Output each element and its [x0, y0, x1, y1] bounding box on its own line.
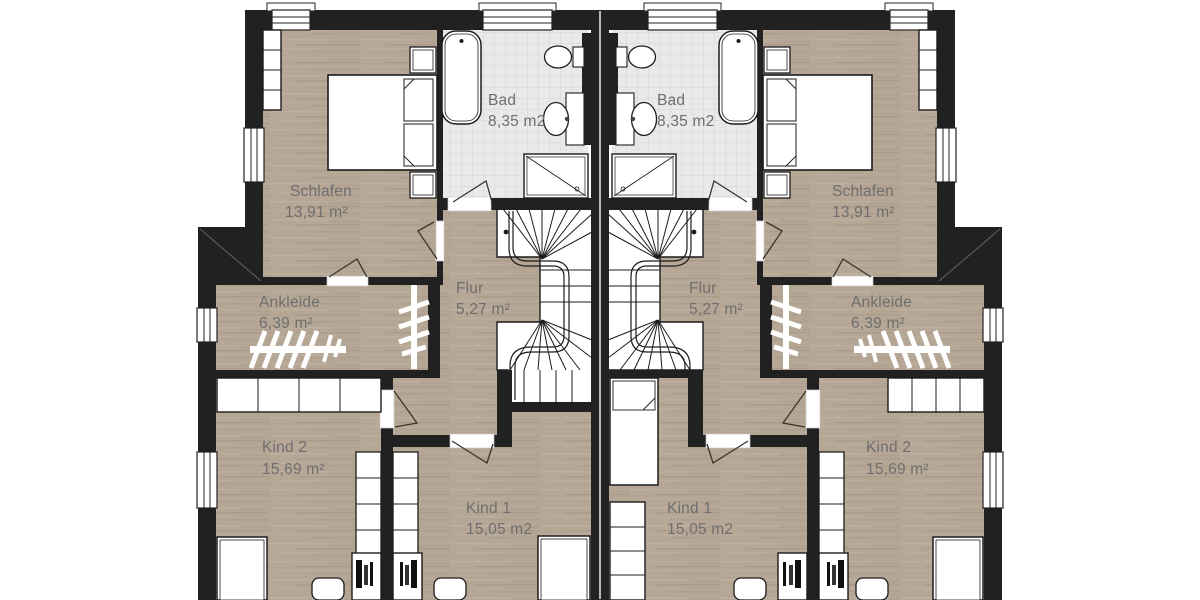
door-opening-kind1-right: [706, 434, 750, 448]
label-bad-left-area: 8,35 m2: [488, 113, 545, 130]
sink-faucet: [631, 117, 635, 121]
toilet-right: [629, 46, 656, 68]
chair-kind1-right: [734, 578, 766, 600]
label-bad-left-name: Bad: [488, 92, 516, 109]
label-kind1-right-name: Kind 1: [667, 500, 712, 517]
label-kind2-left-name: Kind 2: [262, 439, 307, 456]
label-ankleide-left-name: Ankleide: [259, 294, 320, 311]
label-kind2-right-area: 15,69 m²: [866, 461, 929, 478]
label-flur-right-area: 5,27 m²: [689, 301, 743, 318]
outer-wall-right-lower: [984, 243, 1002, 600]
window-schlafen-right: [890, 10, 928, 30]
floor-plan: Schlafen 13,91 m² Bad 8,35 m2 Ankleide 6…: [0, 0, 1200, 600]
window-ankleide-left: [197, 308, 217, 342]
pillow: [613, 381, 655, 410]
floor-plan-page: Schlafen 13,91 m² Bad 8,35 m2 Ankleide 6…: [0, 0, 1200, 600]
pillow: [404, 79, 433, 121]
label-schlafen-right-area: 13,91 m²: [832, 204, 895, 221]
window-schlafen-side-left: [244, 128, 264, 182]
room-ankleide-left: [216, 283, 428, 370]
label-schlafen-left-area: 13,91 m²: [285, 204, 348, 221]
door-opening-kind2-right: [806, 390, 820, 428]
chair-kind2-right: [856, 578, 888, 600]
door-opening-kind2-left: [380, 390, 394, 428]
door-opening-schlafen-right: [756, 221, 764, 261]
label-schlafen-right-name: Schlafen: [832, 183, 894, 200]
window-schlafen-side-right: [936, 128, 956, 182]
toilet-tank: [616, 47, 627, 67]
outer-wall-left-upper: [245, 10, 263, 227]
door-opening-ankleide-left: [327, 276, 368, 286]
label-kind2-right-name: Kind 2: [866, 439, 911, 456]
label-bad-right-name: Bad: [657, 92, 685, 109]
label-bad-right-area: 8,35 m2: [657, 113, 714, 130]
sink-right: [632, 103, 657, 136]
tub-faucet: [737, 39, 741, 43]
label-flur-left-name: Flur: [456, 280, 484, 297]
label-kind1-left-name: Kind 1: [466, 500, 511, 517]
tub-faucet: [460, 39, 464, 43]
label-kind1-right-area: 15,05 m2: [667, 521, 733, 538]
pillow: [767, 124, 796, 166]
door-opening-bad-right: [709, 197, 752, 211]
window-schlafen-left: [272, 10, 310, 30]
outer-wall-left-lower: [198, 243, 216, 600]
window-kind2-left: [197, 452, 217, 508]
door-opening-ankleide-right: [832, 276, 873, 286]
label-flur-left-area: 5,27 m²: [456, 301, 510, 318]
window-ankleide-right: [983, 308, 1003, 342]
pillow: [404, 124, 433, 166]
chair-kind2-left: [312, 578, 344, 600]
window-bad-left: [483, 10, 552, 30]
label-kind1-left-area: 15,05 m2: [466, 521, 532, 538]
label-flur-right-name: Flur: [689, 280, 717, 297]
label-kind2-left-area: 15,69 m²: [262, 461, 325, 478]
outer-wall-right-upper: [937, 10, 955, 227]
toilet-tank: [573, 47, 584, 67]
pillow: [767, 79, 796, 121]
door-opening-kind1-left: [450, 434, 494, 448]
door-opening-bad-left: [448, 197, 491, 211]
label-ankleide-right-area: 6,39 m²: [851, 315, 905, 332]
chair-kind1-left: [434, 578, 466, 600]
label-ankleide-right-name: Ankleide: [851, 294, 912, 311]
window-kind2-right: [983, 452, 1003, 508]
window-bad-right: [648, 10, 717, 30]
label-ankleide-left-area: 6,39 m²: [259, 315, 313, 332]
sink-faucet: [565, 117, 569, 121]
toilet-left: [545, 46, 572, 68]
sink-left: [544, 103, 569, 136]
door-opening-schlafen-left: [436, 221, 444, 261]
label-schlafen-left-name: Schlafen: [290, 183, 352, 200]
